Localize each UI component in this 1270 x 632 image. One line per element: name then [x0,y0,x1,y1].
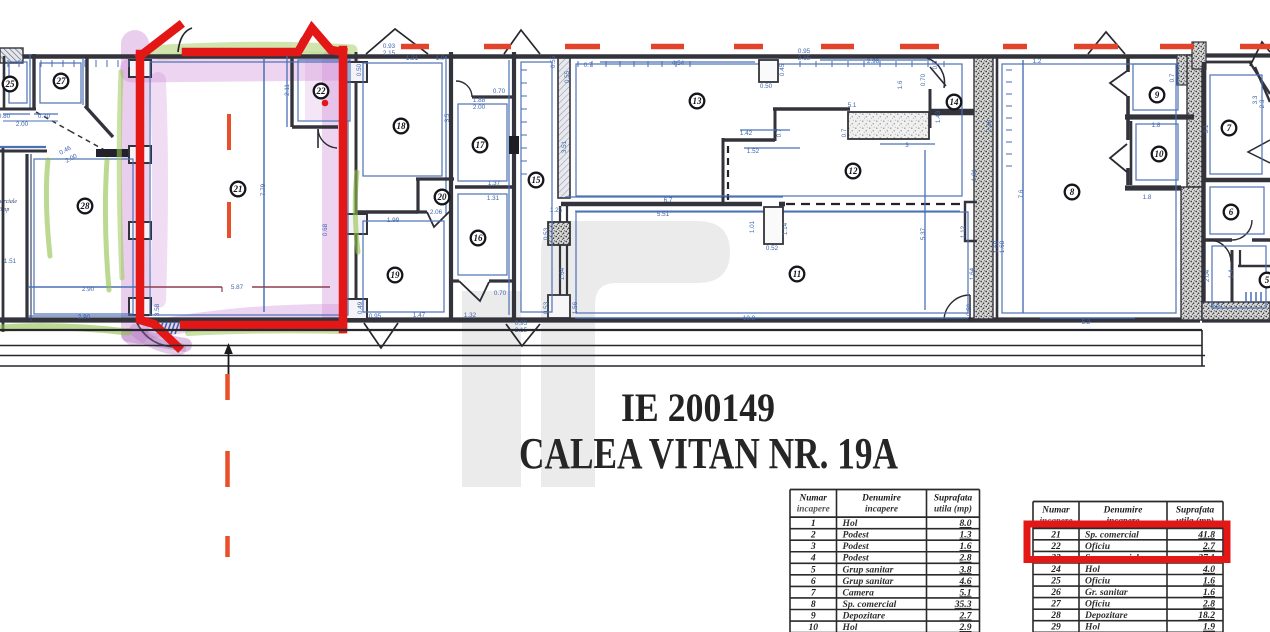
svg-text:Oficiu: Oficiu [1085,541,1111,552]
svg-text:8: 8 [811,599,816,610]
svg-text:4: 4 [810,553,816,564]
svg-text:Hol: Hol [842,518,858,529]
svg-text:2.7: 2.7 [959,610,973,621]
svg-text:16: 16 [474,233,484,243]
svg-text:Denumire: Denumire [861,494,901,504]
svg-text:1.4: 1.4 [1228,269,1235,278]
svg-text:0.70: 0.70 [493,88,506,95]
svg-text:0.80: 0.80 [0,113,11,120]
svg-text:5: 5 [811,564,816,575]
svg-text:Numar: Numar [799,494,828,504]
svg-text:1.6: 1.6 [1203,587,1215,598]
svg-text:2.8: 2.8 [1202,599,1215,610]
svg-text:1.01: 1.01 [749,220,756,233]
svg-text:2.15: 2.15 [383,50,396,57]
svg-text:0.3: 0.3 [932,60,939,69]
svg-text:3.51: 3.51 [561,140,568,153]
svg-text:Oficiu: Oficiu [1085,599,1111,610]
svg-text:8.0: 8.0 [960,518,972,529]
svg-text:10: 10 [1155,149,1165,159]
svg-text:Gr. sanitar: Gr. sanitar [1085,587,1128,598]
svg-text:Sp. comercial: Sp. comercial [843,599,897,610]
svg-text:5.51: 5.51 [657,211,670,218]
svg-text:17: 17 [476,140,486,150]
svg-text:Hol: Hol [1084,564,1100,575]
svg-text:7.79: 7.79 [260,183,267,196]
svg-text:5.1: 5.1 [960,587,972,598]
svg-text:0.50: 0.50 [966,303,973,316]
svg-text:1.43: 1.43 [935,110,942,123]
svg-text:Suprafata: Suprafata [934,494,973,504]
svg-text:0.55: 0.55 [550,55,557,68]
svg-text:1.31: 1.31 [487,195,500,202]
svg-text:1.8: 1.8 [1143,194,1152,201]
svg-text:0.87: 0.87 [1211,302,1224,309]
svg-text:15: 15 [532,175,542,185]
svg-text:1.25: 1.25 [550,207,563,214]
svg-text:9: 9 [1155,90,1160,100]
svg-text:0.95: 0.95 [369,313,382,320]
svg-text:0.7: 0.7 [1169,73,1176,82]
svg-text:0.7: 0.7 [841,128,848,137]
svg-text:Numar: Numar [1041,506,1070,516]
svg-text:11: 11 [793,269,802,279]
svg-text:3.3: 3.3 [1252,95,1259,104]
svg-text:0.95: 0.95 [515,320,528,327]
svg-text:1.3: 1.3 [960,530,972,541]
svg-text:Sp. comercial: Sp. comercial [1085,529,1139,540]
svg-text:1.6: 1.6 [897,80,904,89]
svg-text:utila (mp): utila (mp) [934,504,972,515]
svg-text:4.54: 4.54 [672,60,685,67]
svg-text:Denumire: Denumire [1103,506,1143,516]
svg-text:0.45: 0.45 [779,63,786,76]
svg-text:IE 200149: IE 200149 [621,385,775,430]
svg-text:0.68: 0.68 [322,223,329,236]
svg-text:8: 8 [1070,187,1075,197]
svg-text:1.56: 1.56 [572,301,579,314]
svg-text:27: 27 [1050,599,1062,610]
svg-text:1: 1 [811,518,816,529]
svg-text:0.95: 0.95 [798,48,811,55]
svg-text:Depozitare: Depozitare [842,610,886,621]
svg-text:0.70: 0.70 [38,113,51,120]
svg-text:21: 21 [1050,529,1061,540]
svg-text:2.00: 2.00 [473,104,486,111]
svg-text:3: 3 [810,541,816,552]
svg-text:10: 10 [808,622,818,632]
svg-text:2.00: 2.00 [16,121,29,128]
svg-text:29: 29 [1050,622,1061,632]
svg-text:0.53: 0.53 [543,227,550,240]
svg-text:2.98: 2.98 [867,58,880,65]
svg-text:14: 14 [950,97,960,107]
svg-text:3.58: 3.58 [154,303,161,316]
svg-text:26: 26 [1050,587,1061,598]
svg-text:1.99: 1.99 [387,217,400,224]
svg-text:Camera: Camera [843,587,875,598]
svg-text:2.3: 2.3 [1259,99,1266,108]
svg-text:2: 2 [810,530,816,541]
svg-text:Grup sanitar: Grup sanitar [843,576,894,587]
svg-text:0.53: 0.53 [543,301,550,314]
svg-text:1.6: 1.6 [960,541,972,552]
svg-text:2.06: 2.06 [430,209,443,216]
svg-text:5: 5 [1265,275,1270,285]
svg-text:22: 22 [1050,541,1061,552]
svg-text:2.9: 2.9 [959,622,972,632]
svg-text:1.8: 1.8 [1152,122,1161,129]
svg-text:Hol: Hol [1084,622,1100,632]
svg-text:1.6: 1.6 [1203,575,1215,586]
svg-text:0.50: 0.50 [356,63,363,76]
svg-text:2.11: 2.11 [284,84,291,96]
svg-text:2.7: 2.7 [1202,541,1216,552]
svg-text:0.70: 0.70 [920,73,927,86]
svg-text:Podest: Podest [843,553,869,564]
svg-text:1.0: 1.0 [436,55,445,62]
svg-text:1.9: 1.9 [1203,622,1215,632]
svg-text:10.8: 10.8 [743,315,756,322]
svg-text:Depozitare: Depozitare [1084,610,1128,621]
svg-text:7: 7 [1227,123,1232,133]
svg-text:3: 3 [905,142,909,149]
svg-text:1.32: 1.32 [464,312,477,319]
svg-text:2.38: 2.38 [986,119,993,132]
svg-text:1.64: 1.64 [559,267,566,280]
svg-text:3.5: 3.5 [444,113,451,122]
svg-text:28: 28 [1050,610,1061,621]
svg-text:18.2: 18.2 [1198,610,1215,621]
svg-text:28: 28 [80,201,91,211]
svg-text:27: 27 [56,76,67,86]
svg-text:0.49: 0.49 [357,301,364,314]
svg-text:3.1: 3.1 [1203,124,1210,133]
svg-text:35.3: 35.3 [954,599,972,610]
svg-text:5.2: 5.2 [1082,319,1091,326]
svg-text:1.42: 1.42 [740,130,753,137]
svg-text:2.8: 2.8 [959,553,972,564]
svg-text:1.14: 1.14 [782,222,789,235]
svg-text:Hol: Hol [842,622,858,632]
svg-text:incapere: incapere [865,505,898,515]
svg-text:1.37: 1.37 [488,180,501,187]
svg-text:incapere: incapere [797,505,830,515]
svg-text:5.1: 5.1 [848,102,857,109]
svg-text:0.50: 0.50 [760,83,773,90]
svg-text:4.0: 4.0 [1202,564,1215,575]
svg-text:Grup sanitar: Grup sanitar [843,564,894,575]
svg-text:22: 22 [316,86,327,96]
svg-text:1.2: 1.2 [1033,58,1042,65]
svg-text:6: 6 [811,576,816,587]
svg-text:25: 25 [5,79,16,89]
svg-text:5.37: 5.37 [920,227,927,240]
svg-text:6.7: 6.7 [664,197,673,204]
svg-text:1.12: 1.12 [960,225,967,238]
svg-text:1.81: 1.81 [971,168,978,181]
svg-text:1.47: 1.47 [413,312,426,319]
svg-text:Suprafata: Suprafata [1176,506,1215,516]
svg-text:CALEA VITAN NR. 19A: CALEA VITAN NR. 19A [519,429,898,478]
svg-text:1.21: 1.21 [406,55,419,62]
svg-text:1.64: 1.64 [969,267,976,280]
svg-text:2.15: 2.15 [798,55,811,62]
svg-text:25: 25 [1050,575,1061,586]
svg-text:9: 9 [811,610,816,621]
svg-text:0.93: 0.93 [383,43,396,50]
svg-text:6: 6 [1229,207,1234,217]
svg-text:3.8: 3.8 [959,564,972,575]
svg-text:0.70: 0.70 [494,290,507,297]
svg-text:1.88: 1.88 [473,97,486,104]
svg-text:21: 21 [233,184,243,194]
svg-text:12: 12 [849,166,859,176]
svg-text:0.7: 0.7 [776,128,783,137]
svg-text:Oficiu: Oficiu [1085,575,1111,586]
svg-text:omerciale: omerciale [0,199,17,205]
svg-text:1.68: 1.68 [999,240,1006,253]
svg-text:13: 13 [693,96,703,106]
svg-text:7.6: 7.6 [1018,189,1025,198]
svg-text:24: 24 [1050,564,1061,575]
svg-text:41.8: 41.8 [1197,529,1215,540]
svg-text:2.90: 2.90 [78,314,91,321]
svg-text:2.90: 2.90 [82,286,95,293]
svg-text:1.51: 1.51 [4,258,17,265]
svg-text:Podest: Podest [843,530,869,541]
svg-text:0.52: 0.52 [766,245,779,252]
svg-text:5.87: 5.87 [231,284,244,291]
svg-text:1.52: 1.52 [747,148,760,155]
svg-text:18: 18 [397,121,407,131]
svg-text:46.3mp: 46.3mp [0,206,9,213]
svg-text:20: 20 [437,192,448,202]
svg-text:0.55: 0.55 [564,70,571,83]
svg-text:2.04: 2.04 [1204,269,1211,282]
svg-text:4.6: 4.6 [959,576,972,587]
svg-text:Podest: Podest [843,541,869,552]
svg-text:19: 19 [391,270,401,280]
